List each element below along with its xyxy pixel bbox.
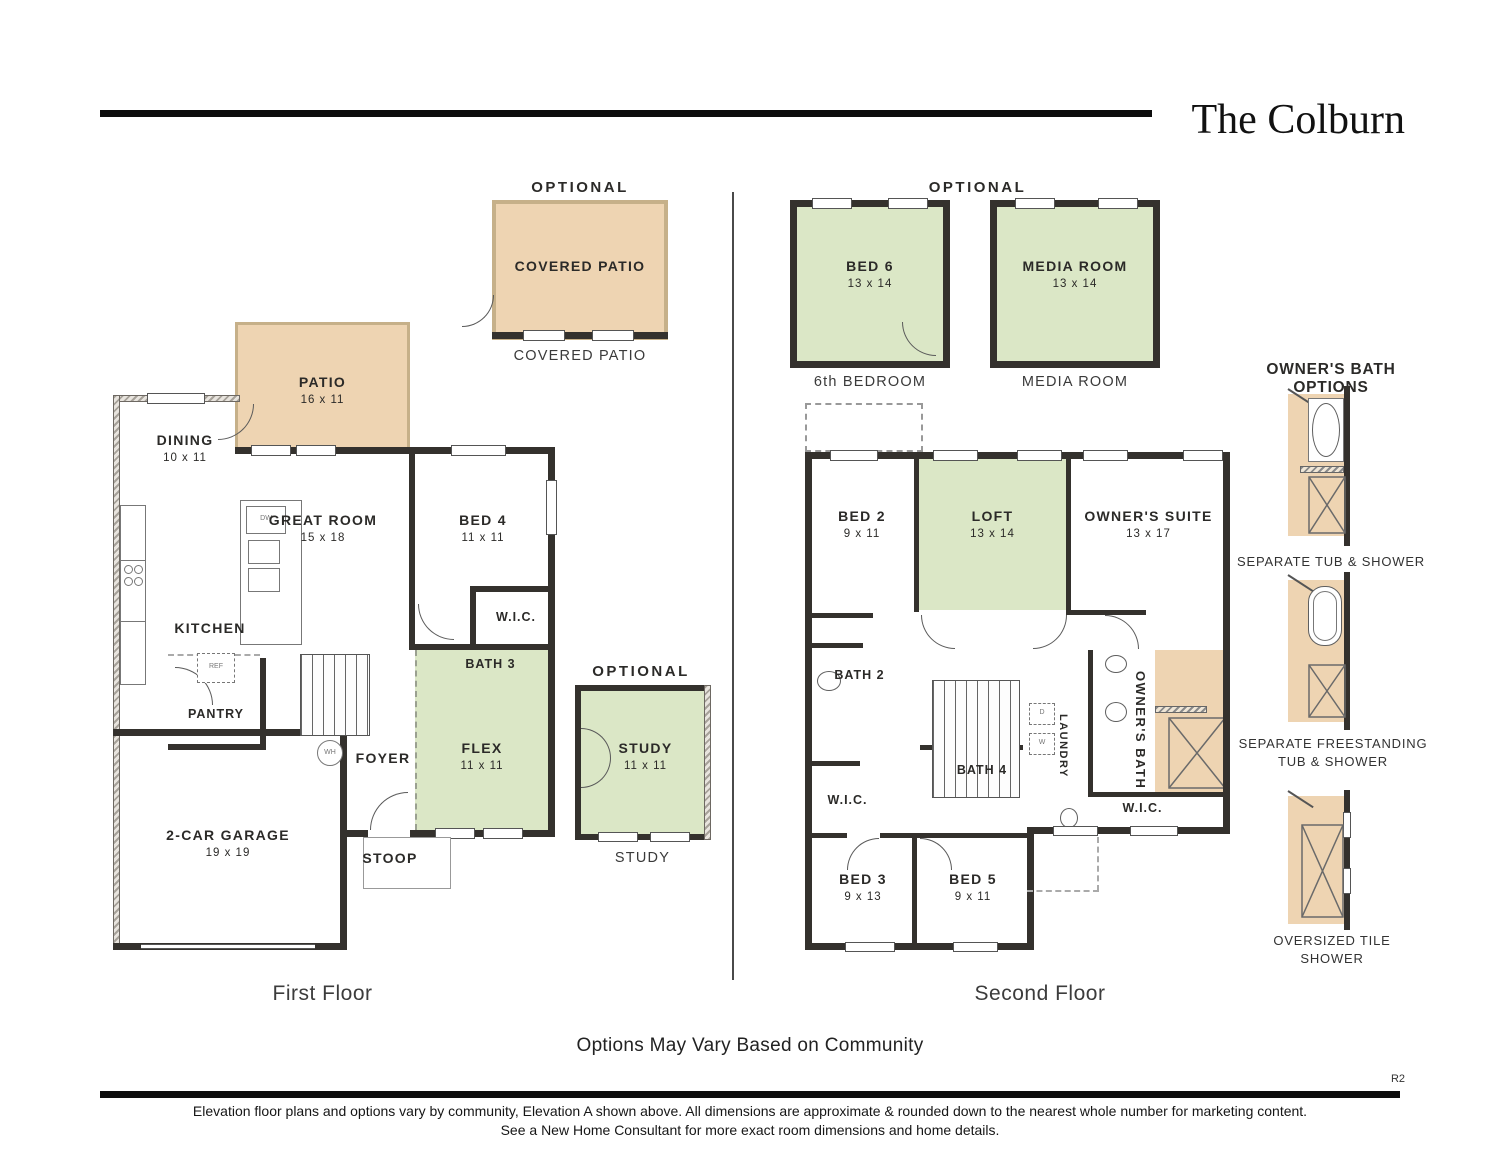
shower-x (1308, 476, 1346, 534)
room-label-owners-suite: OWNER'S SUITE 13 x 17 (1071, 508, 1226, 541)
wall (880, 833, 1030, 838)
window (296, 445, 336, 456)
burner (134, 577, 143, 586)
wall (805, 452, 812, 950)
burner (124, 565, 133, 574)
room-label-owners-bath: OWNER'S BATH (1133, 653, 1148, 808)
roof-dashed-line (1027, 890, 1099, 892)
window (1343, 812, 1351, 838)
bath-option-2-caption: SEPARATE FREESTANDING TUB & SHOWER (1228, 735, 1438, 770)
wall (470, 586, 555, 592)
room-label-covered-patio: COVERED PATIO (492, 258, 668, 276)
door-arc (920, 838, 952, 870)
top-rule (100, 110, 1152, 117)
room-label-media: MEDIA ROOM 13 x 14 (990, 258, 1160, 291)
bath-option-2 (1288, 572, 1358, 730)
stairs (932, 680, 1020, 798)
water-heater-label: WH (317, 749, 343, 756)
room-label-bed3: BED 3 9 x 13 (817, 871, 909, 904)
room-label-bed5: BED 5 9 x 11 (927, 871, 1019, 904)
wall (1344, 790, 1350, 930)
tub-basin (1312, 403, 1340, 457)
study-caption: STUDY (575, 850, 710, 866)
bath-option-1-caption: SEPARATE TUB & SHOWER (1235, 553, 1427, 571)
room-label-wic-left: W.I.C. (810, 793, 885, 809)
window (1015, 198, 1055, 209)
wall (260, 658, 266, 750)
room-label-dining: DINING 10 x 11 (121, 432, 249, 465)
bath-option-3-caption: OVERSIZED TILE SHOWER (1248, 932, 1416, 967)
wall (805, 943, 1034, 950)
freestanding-tub (1308, 586, 1342, 646)
sink (1105, 655, 1127, 673)
refrigerator-label: REF (197, 663, 235, 670)
wall (415, 644, 555, 650)
wall (1088, 650, 1093, 795)
door-arc (1033, 615, 1067, 649)
wall (113, 395, 120, 950)
media-caption: MEDIA ROOM (990, 374, 1160, 390)
bed6-caption: 6th BEDROOM (790, 374, 950, 390)
window (1343, 868, 1351, 894)
room-label-bed2: BED 2 9 x 11 (813, 508, 911, 541)
room-label-bath4: BATH 4 (937, 763, 1027, 779)
wall (1027, 827, 1034, 950)
wall (575, 685, 710, 691)
optional-header-study: OPTIONAL (575, 663, 707, 680)
burner (134, 565, 143, 574)
room-label-wic-right: W.I.C. (1100, 801, 1185, 817)
sink (1105, 702, 1127, 722)
window (845, 942, 895, 952)
floorplan-sheet: The Colburn OPTIONAL COVERED PATIO COVER… (0, 0, 1500, 1159)
room-label-foyer: FOYER (341, 750, 425, 768)
door-arc (370, 792, 408, 830)
optional-room-footprint (805, 403, 923, 452)
bottom-rule (100, 1091, 1400, 1098)
options-note: Options May Vary Based on Community (0, 1035, 1500, 1057)
window (592, 330, 634, 341)
window (483, 828, 523, 839)
wall (805, 761, 860, 766)
second-floor-caption: Second Floor (945, 982, 1135, 1006)
door-arc (921, 615, 955, 649)
window (1017, 450, 1062, 461)
room-label-bed4: BED 4 11 x 11 (428, 512, 538, 545)
shower-x (1301, 824, 1344, 918)
dryer-label: D (1029, 709, 1055, 716)
stairs (300, 654, 370, 736)
shower-x (1308, 664, 1346, 718)
first-floor-caption: First Floor (230, 982, 415, 1006)
page-title: The Colburn (1060, 96, 1405, 144)
front-door-opening (368, 830, 410, 837)
window (933, 450, 978, 461)
room-label-kitchen: KITCHEN (155, 620, 265, 638)
garage-door-opening (141, 944, 315, 949)
window (598, 832, 638, 842)
wall (805, 643, 863, 648)
washer-label: W (1029, 739, 1055, 746)
burner (124, 577, 133, 586)
wall (1088, 792, 1230, 797)
room-label-flex: FLEX 11 x 11 (415, 740, 549, 773)
plan-divider (732, 192, 734, 980)
toilet (1060, 808, 1078, 828)
room-label-bed6: BED 6 13 x 14 (790, 258, 950, 291)
room-label-laundry: LAUNDRY (1057, 698, 1069, 793)
window (1130, 826, 1178, 836)
door-arc (847, 838, 879, 870)
room-label-garage: 2-CAR GARAGE 19 x 19 (143, 827, 313, 860)
roof-dashed-line (1097, 837, 1099, 891)
room-label-study: STUDY 11 x 11 (581, 740, 710, 773)
window (251, 445, 291, 456)
window (812, 198, 852, 209)
window (546, 480, 557, 535)
wall (790, 361, 950, 368)
disclaimer-line-2: See a New Home Consultant for more exact… (60, 1122, 1440, 1138)
wall (805, 833, 847, 838)
room-label-patio: PATIO 16 x 11 (235, 374, 410, 407)
room-label-pantry: PANTRY (171, 707, 261, 723)
window (147, 393, 205, 404)
second-floor-plan: D W BED 2 9 x 11 LOFT 13 x (805, 403, 1230, 950)
tub-basin (1313, 591, 1337, 641)
window (830, 450, 878, 461)
hatch-strip (1300, 466, 1344, 473)
wall (805, 613, 873, 618)
room-label-bath2: BATH 2 (817, 668, 902, 684)
hatch-strip (1155, 706, 1207, 713)
window (1183, 450, 1223, 461)
wall (470, 586, 476, 650)
door-arc (418, 604, 454, 640)
door-arc (1105, 615, 1139, 649)
disclaimer-line-1: Elevation floor plans and options vary b… (60, 1103, 1440, 1119)
wall (912, 837, 917, 947)
window (1083, 450, 1128, 461)
window (650, 832, 690, 842)
room-label-wic: W.I.C. (481, 610, 551, 626)
wall (409, 454, 415, 650)
room-label-bath3: BATH 3 (443, 657, 538, 673)
shower-x (1168, 717, 1226, 789)
window (888, 198, 928, 209)
bath-option-1 (1288, 386, 1358, 546)
first-floor-plan: PATIO 16 x 11 (113, 322, 555, 950)
wall (990, 361, 1160, 368)
window (953, 942, 998, 952)
room-label-stoop: STOOP (345, 850, 435, 868)
revision-label: R2 (1340, 1073, 1405, 1085)
sink (248, 568, 280, 592)
window (1098, 198, 1138, 209)
optional-header-covered-patio: OPTIONAL (490, 179, 670, 196)
room-label-loft: LOFT 13 x 14 (917, 508, 1068, 541)
bath-option-3 (1288, 790, 1358, 930)
optional-header-second: OPTIONAL (895, 179, 1060, 196)
room-label-great-room: GREAT ROOM 15 x 18 (233, 512, 413, 545)
window (1053, 826, 1098, 836)
wall (168, 744, 266, 750)
window (451, 445, 506, 456)
